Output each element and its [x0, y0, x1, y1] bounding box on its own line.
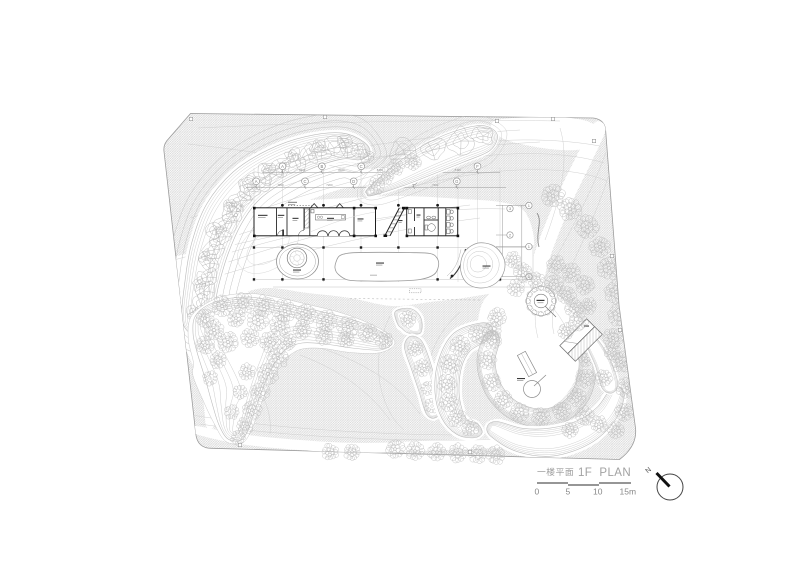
svg-text:7200: 7200 [326, 183, 333, 187]
svg-text:8400: 8400 [299, 168, 306, 172]
svg-text:1F PLAN: 1F PLAN [578, 467, 631, 479]
svg-text:A: A [281, 164, 284, 169]
svg-text:8400: 8400 [338, 168, 345, 172]
svg-text:D: D [352, 179, 355, 184]
svg-text:5: 5 [566, 487, 571, 497]
svg-text:C: C [303, 179, 306, 184]
svg-text:F: F [476, 164, 479, 169]
svg-text:B: B [321, 164, 324, 169]
svg-text:10: 10 [593, 487, 603, 497]
svg-text:0: 0 [535, 487, 540, 497]
svg-text:N: N [644, 466, 652, 475]
svg-text:7200: 7200 [277, 183, 284, 187]
svg-text:A: A [255, 179, 258, 184]
svg-text:一楼平面: 一楼平面 [537, 466, 574, 477]
svg-text:15m: 15m [620, 487, 637, 497]
svg-text:C: C [360, 164, 363, 169]
svg-text:G: G [455, 179, 458, 184]
